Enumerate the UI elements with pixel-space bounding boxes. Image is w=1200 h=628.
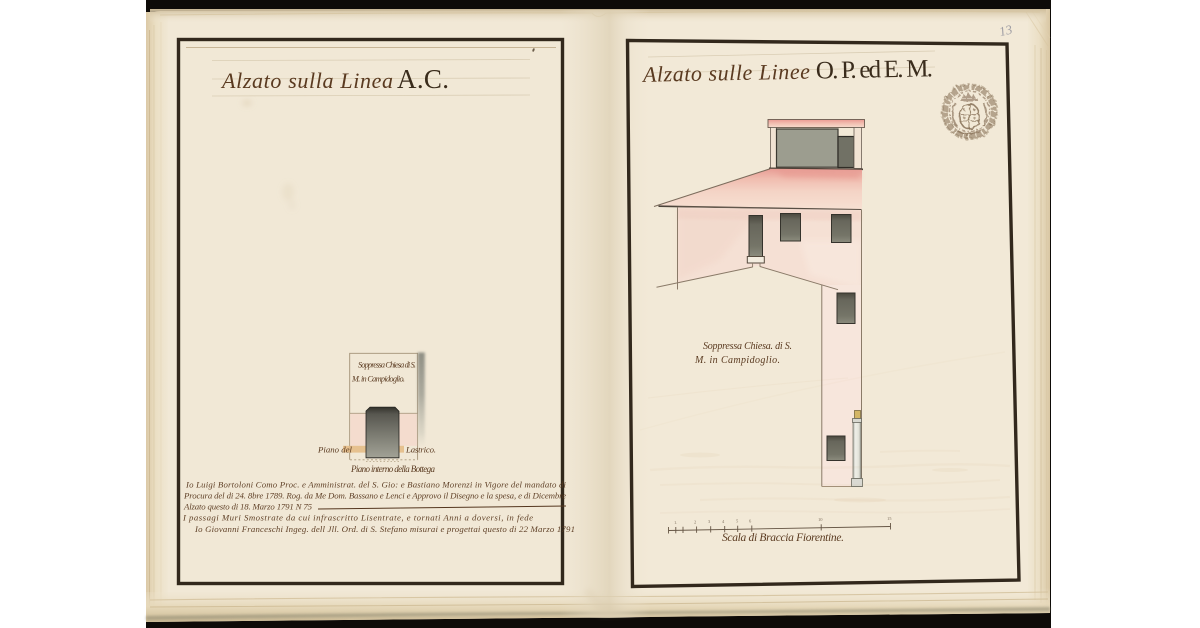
- svg-text:Lastrico.: Lastrico.: [405, 445, 436, 455]
- svg-text:Alzato sulla Linea: Alzato sulla Linea: [220, 68, 393, 93]
- svg-text:15: 15: [887, 516, 892, 521]
- svg-text:1.: 1.: [674, 520, 677, 525]
- svg-text:A.C.: A.C.: [397, 64, 449, 94]
- svg-text:Io Giovanni Franceschi Ingeg.: Io Giovanni Franceschi Ingeg. dell Jll. …: [194, 524, 575, 534]
- svg-text:Piano del: Piano del: [317, 445, 353, 455]
- svg-text:Soppressa Chiesa. di S.: Soppressa Chiesa. di S.: [703, 341, 792, 352]
- svg-text:Piano interno della Bottega: Piano interno della Bottega: [350, 464, 436, 474]
- svg-text:Alzato sulle Linee: Alzato sulle Linee: [641, 59, 811, 87]
- svg-text:2: 2: [694, 520, 696, 525]
- svg-text:10: 10: [818, 517, 823, 522]
- svg-text:Alzato questo di 18. Marzo 179: Alzato questo di 18. Marzo 1791 N 75: [183, 502, 313, 512]
- svg-text:Soppressa Chiesa di S.: Soppressa Chiesa di S.: [358, 361, 416, 370]
- svg-text:Io Luigi Bortoloni Como Proc.: Io Luigi Bortoloni Como Proc. e Amminist…: [185, 480, 567, 490]
- svg-text:I passagi Muri Smostrate da cu: I passagi Muri Smostrate da cui infrascr…: [182, 513, 533, 523]
- svg-text:Scala di Braccia Fiorentine.: Scala di Braccia Fiorentine.: [722, 532, 844, 544]
- svg-text:O. P. ed E. M.: O. P. ed E. M.: [816, 55, 933, 84]
- svg-text:M. in Campidoglio.: M. in Campidoglio.: [351, 375, 405, 384]
- svg-text:M. in Campidoglio.: M. in Campidoglio.: [694, 355, 780, 366]
- svg-text:Procura del di 24. 8bre 1789.: Procura del di 24. 8bre 1789. Rog. da Me…: [183, 491, 566, 501]
